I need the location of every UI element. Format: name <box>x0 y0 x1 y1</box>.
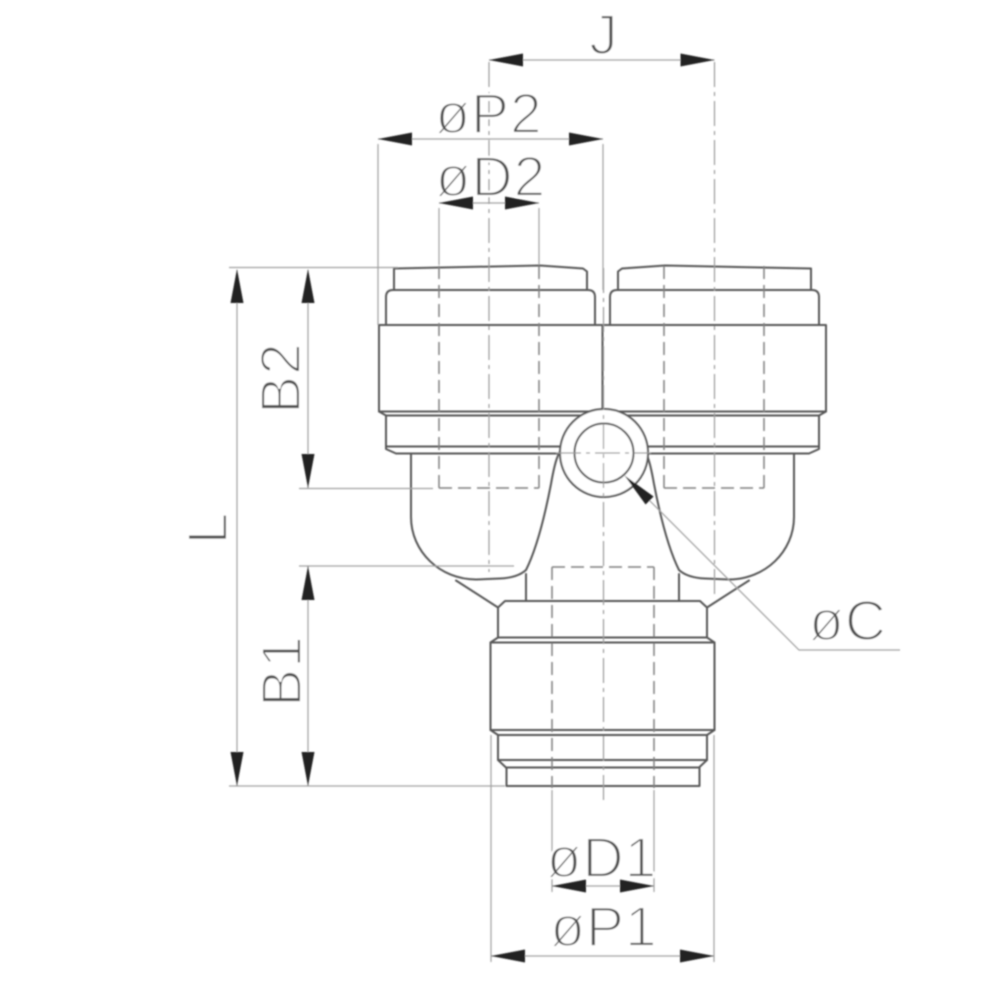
svg-text:øD2: øD2 <box>436 145 547 209</box>
svg-text:B2: B2 <box>249 342 313 414</box>
svg-text:øD1: øD1 <box>547 826 658 890</box>
svg-text:øP2: øP2 <box>435 82 543 146</box>
svg-text:øC: øC <box>809 589 887 653</box>
svg-text:L: L <box>176 512 240 545</box>
svg-text:J: J <box>589 3 619 67</box>
svg-text:øP1: øP1 <box>550 895 658 959</box>
svg-text:B1: B1 <box>250 635 314 707</box>
